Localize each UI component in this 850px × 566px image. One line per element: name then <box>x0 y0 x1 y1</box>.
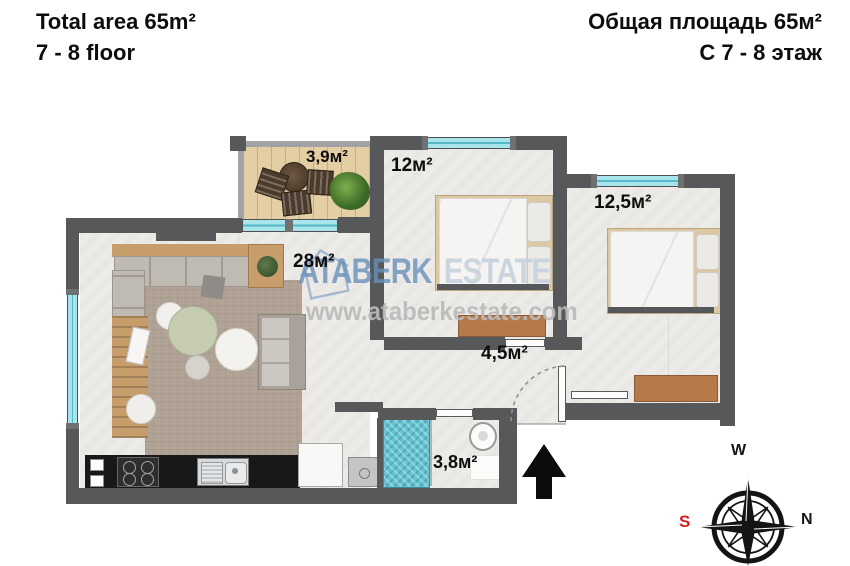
bedroom2-area-label: 12,5м² <box>594 192 651 214</box>
entrance-arrow-icon <box>522 444 566 499</box>
watermark-url: www.ataberkestate.com <box>306 296 578 327</box>
bedroom1-area-label: 12м² <box>391 155 433 177</box>
watermark-brand-part2: ESTATE <box>444 252 551 291</box>
compass-rose-icon <box>692 441 814 566</box>
bathroom-area-label: 3,8м² <box>433 452 477 473</box>
entry-door-arc <box>511 366 566 421</box>
living-area-label: 28м² <box>293 251 335 273</box>
watermark-brand: ATABERK ESTATE <box>298 252 550 292</box>
compass-north-label: N <box>801 511 813 529</box>
balcony-area-label: 3,9м² <box>306 147 348 167</box>
hallway-area-label: 4,5м² <box>481 343 528 365</box>
compass-south-label: S <box>679 512 690 532</box>
floorplan-canvas: Total area 65m² 7 - 8 floor Общая площад… <box>0 0 850 566</box>
compass-west-label: W <box>731 442 746 460</box>
